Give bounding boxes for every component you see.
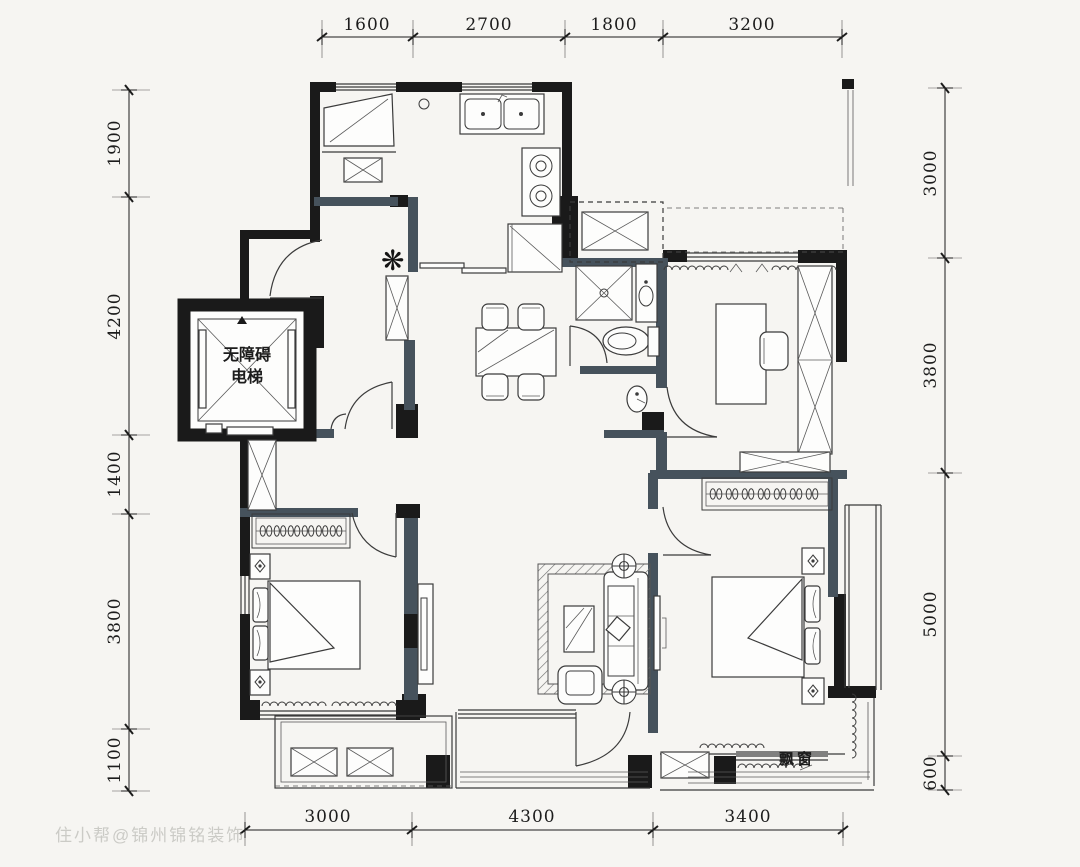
floor-lamp bbox=[612, 554, 636, 578]
dimension-right: 3000 3800 5000 600 bbox=[921, 83, 962, 795]
tv bbox=[654, 596, 660, 670]
toilet bbox=[603, 327, 649, 355]
elevator-label-line2: 电梯 bbox=[231, 367, 263, 386]
kitchen-sliding-door bbox=[420, 263, 464, 268]
hall-door-arc bbox=[345, 382, 392, 429]
dim-left-2: 4200 bbox=[105, 292, 125, 339]
study-door-arc bbox=[667, 387, 717, 437]
pillow bbox=[253, 626, 268, 660]
bay-window-label: 飘窗 bbox=[779, 750, 815, 768]
dim-left-3: 1400 bbox=[105, 450, 125, 497]
dim-left-4: 3800 bbox=[105, 597, 125, 644]
stove bbox=[522, 148, 560, 216]
dimension-left: 1900 4200 1400 3800 1100 bbox=[105, 85, 150, 796]
watermark: 住小帮@锦州锦铭装饰 bbox=[55, 826, 245, 845]
pillow bbox=[805, 628, 820, 664]
room-master-bedroom bbox=[663, 478, 832, 748]
dim-top-1: 1600 bbox=[343, 15, 390, 35]
elevator: 无障碍 电梯 bbox=[184, 305, 310, 435]
pillow bbox=[253, 588, 268, 622]
drain-icon bbox=[419, 99, 429, 109]
dim-right-3: 5000 bbox=[921, 590, 941, 637]
dim-top-4: 3200 bbox=[728, 15, 775, 35]
pillow bbox=[805, 586, 820, 622]
master-door-arc bbox=[663, 507, 711, 555]
dimension-bottom: 3000 4300 3400 bbox=[240, 807, 848, 846]
entry-door-arc bbox=[270, 240, 322, 296]
dim-bottom-2: 4300 bbox=[508, 807, 555, 827]
dim-bottom-1: 3000 bbox=[304, 807, 351, 827]
balcony-center bbox=[456, 712, 650, 788]
dim-right-4: 600 bbox=[921, 755, 941, 790]
dim-top-3: 1800 bbox=[590, 15, 637, 35]
room-kitchen bbox=[419, 94, 562, 273]
armchair bbox=[558, 666, 602, 704]
toilet-door-arc bbox=[570, 326, 607, 363]
dim-left-1: 1900 bbox=[105, 119, 125, 166]
floor-plan-page: 1600 2700 1800 3200 1900 4200 1400 3800 … bbox=[0, 0, 1080, 867]
dim-right-2: 3800 bbox=[921, 341, 941, 388]
balcony-left bbox=[275, 716, 452, 788]
room-study bbox=[664, 264, 836, 472]
room-living bbox=[538, 554, 666, 704]
dim-bottom-3: 3400 bbox=[724, 807, 771, 827]
room-laundry bbox=[322, 94, 396, 182]
bedroom-door-arc bbox=[352, 513, 396, 557]
dim-left-5: 1100 bbox=[105, 736, 125, 783]
room-bathroom bbox=[570, 264, 659, 412]
dim-right-1: 3000 bbox=[921, 149, 941, 196]
hall-console bbox=[418, 584, 433, 684]
dimension-top: 1600 2700 1800 3200 bbox=[317, 15, 847, 58]
plant-icon: ❋ bbox=[381, 245, 404, 276]
room-bedroom-left bbox=[250, 513, 396, 706]
dim-top-2: 2700 bbox=[465, 15, 512, 35]
room-dining bbox=[418, 304, 556, 684]
elevator-label-line1: 无障碍 bbox=[222, 345, 271, 364]
equipment-platform bbox=[570, 90, 853, 262]
balcony-door-arc bbox=[576, 712, 630, 766]
hall-door-arc-small bbox=[331, 414, 346, 429]
kitchen-sink bbox=[460, 94, 544, 134]
desk bbox=[716, 304, 766, 404]
floor-lamp bbox=[612, 680, 636, 704]
floor-plan-svg: 1600 2700 1800 3200 1900 4200 1400 3800 … bbox=[0, 0, 1080, 867]
